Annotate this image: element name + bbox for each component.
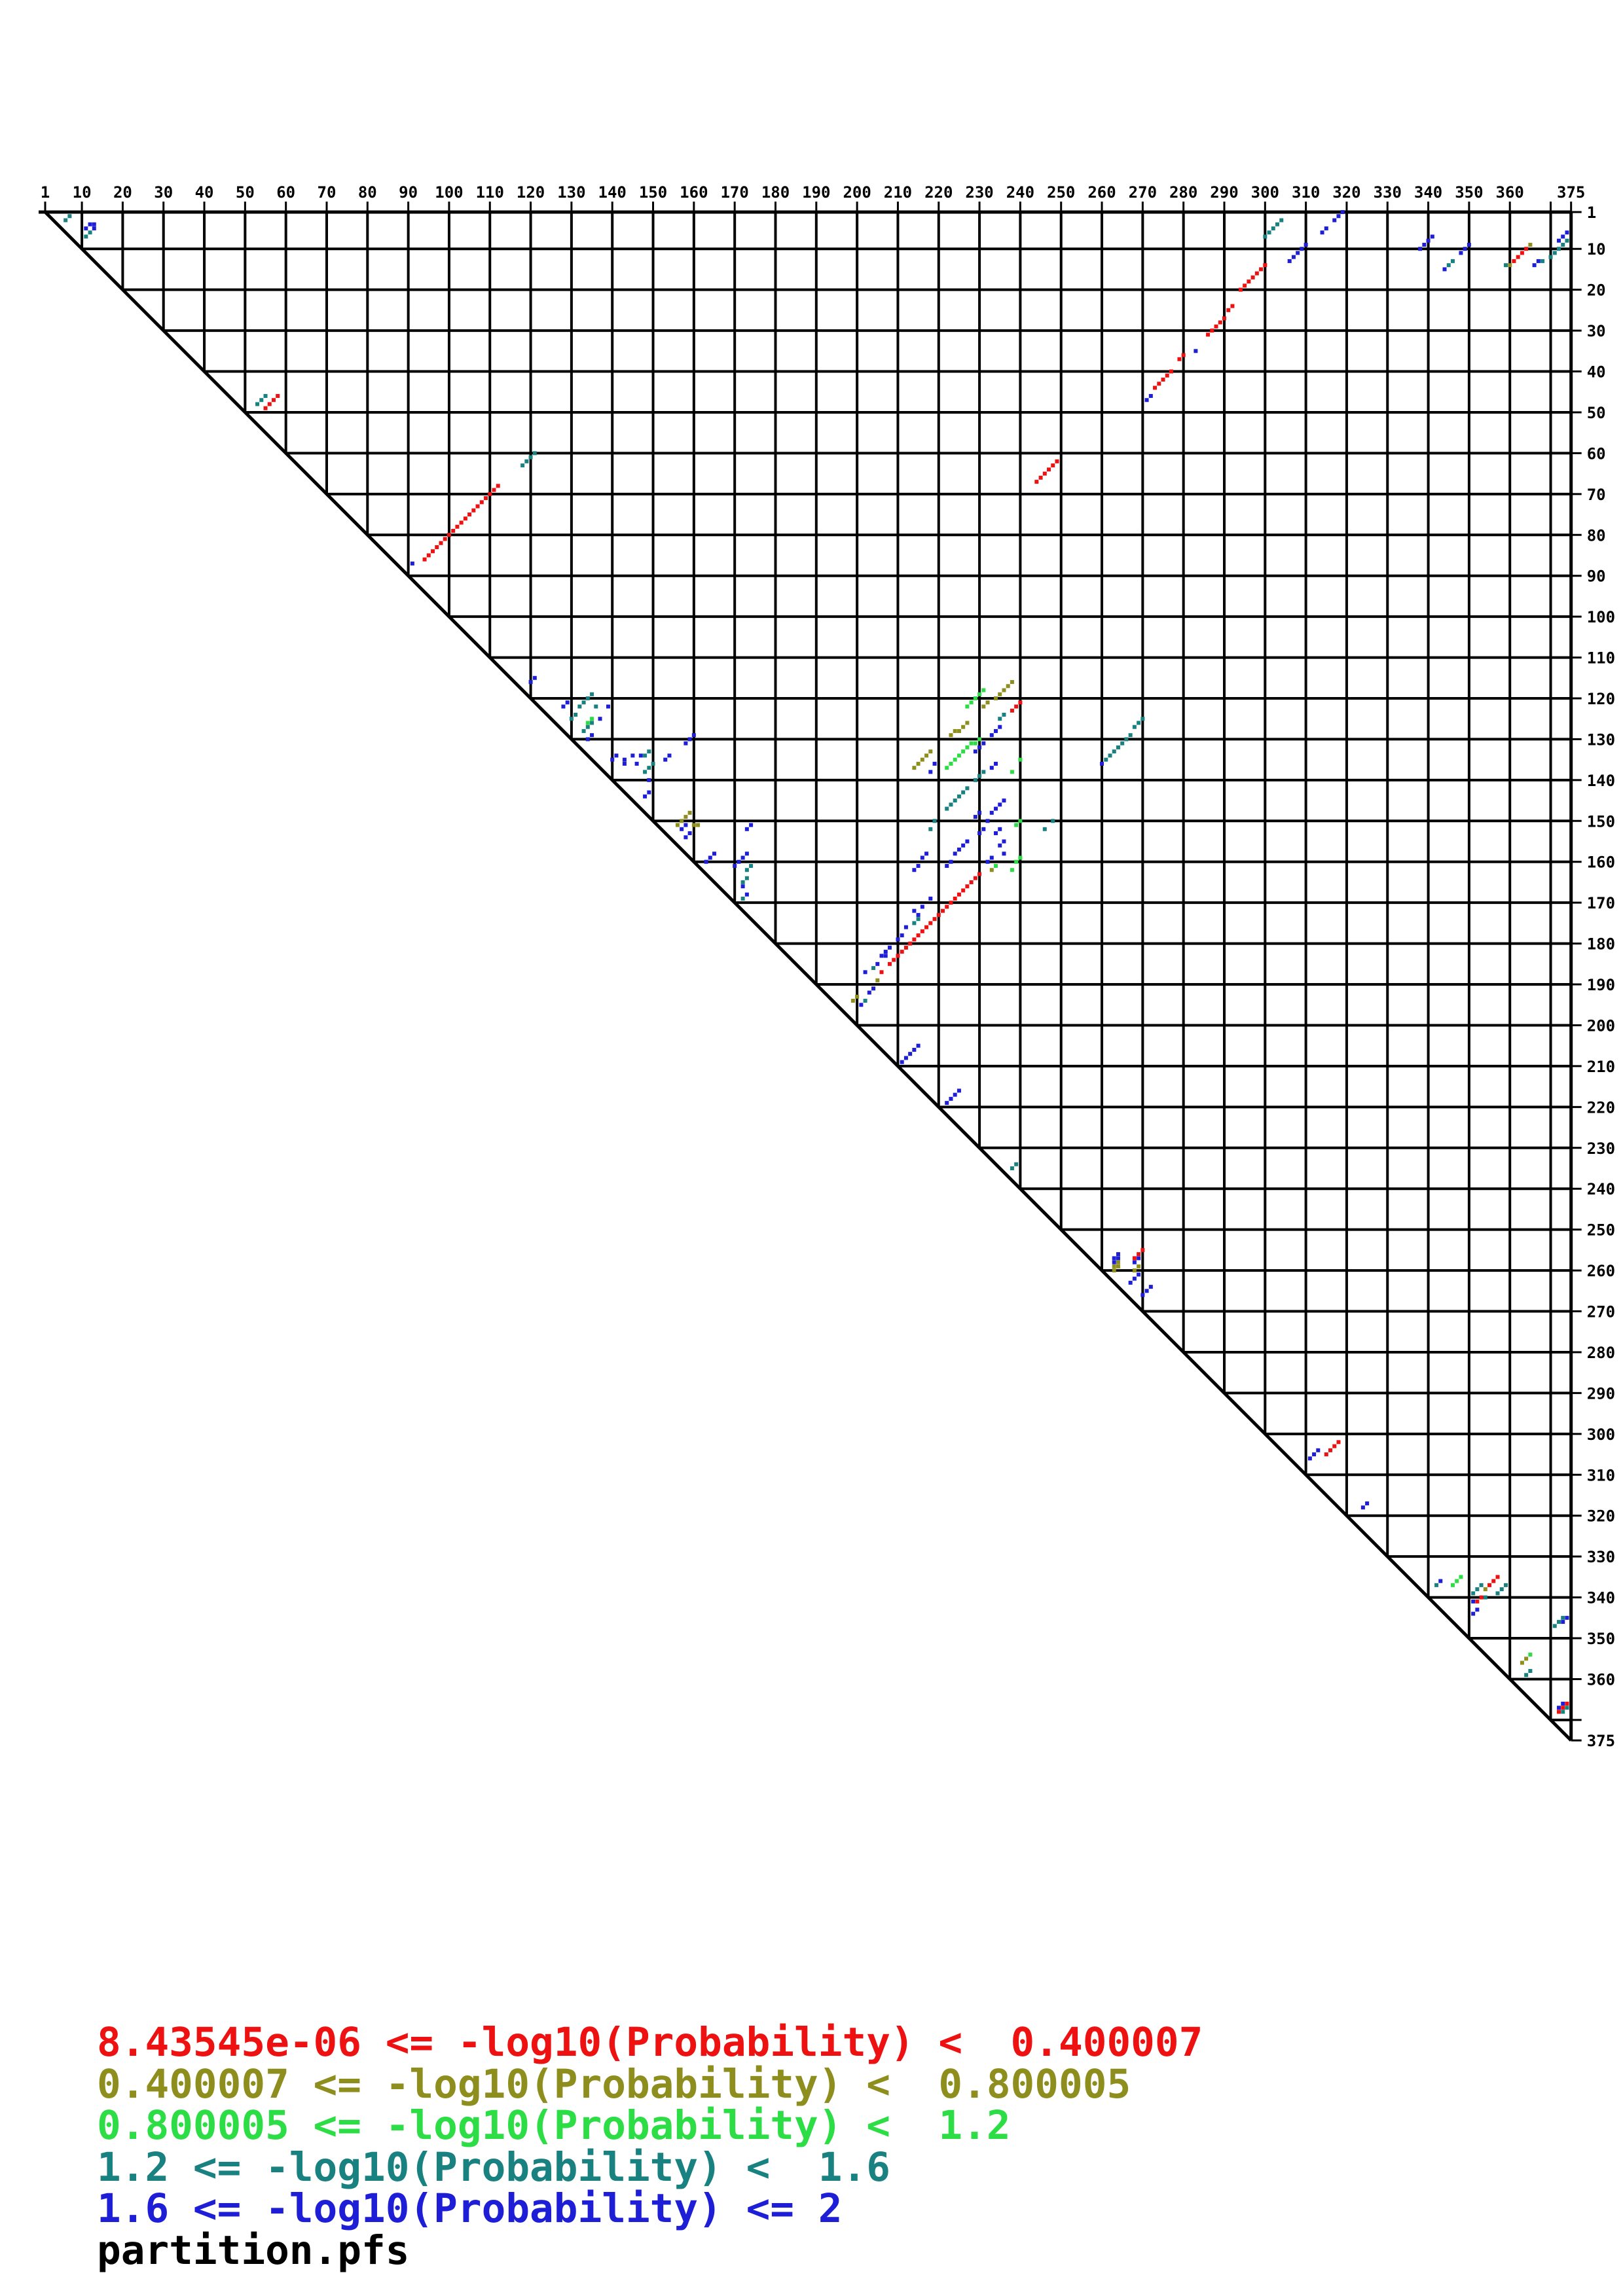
right-tick-label-20: 20 <box>1587 281 1606 300</box>
top-tick-label-220: 220 <box>924 183 953 202</box>
legend-filename: partition.pfs <box>97 2231 409 2270</box>
top-tick-label-260: 260 <box>1087 183 1116 202</box>
right-tick-label-220: 220 <box>1587 1098 1615 1117</box>
top-tick-label-320: 320 <box>1332 183 1360 202</box>
legend-line-3: 0.800005 <= -log10(Probability) < 1.2 <box>97 2106 1011 2145</box>
right-tick-label-60: 60 <box>1587 444 1606 463</box>
top-tick-label-110: 110 <box>476 183 504 202</box>
right-tick-label-340: 340 <box>1587 1589 1615 1607</box>
top-tick-label-180: 180 <box>761 183 790 202</box>
top-tick-label-190: 190 <box>802 183 830 202</box>
top-tick-label-100: 100 <box>435 183 463 202</box>
right-tick-label-320: 320 <box>1587 1507 1615 1526</box>
right-tick-label-70: 70 <box>1587 486 1606 504</box>
right-tick-label-375: 375 <box>1587 1732 1615 1750</box>
right-tick-label-290: 290 <box>1587 1384 1615 1403</box>
right-tick-label-10: 10 <box>1587 240 1606 259</box>
right-tick-label-240: 240 <box>1587 1180 1615 1198</box>
top-tick-label-210: 210 <box>884 183 912 202</box>
top-tick-label-340: 340 <box>1414 183 1442 202</box>
series-prob-bin-3 <box>586 689 1533 1657</box>
tick-layer <box>45 202 1582 1740</box>
right-tick-label-160: 160 <box>1587 853 1615 872</box>
grid-layer <box>39 212 1571 1740</box>
top-tick-label-10: 10 <box>73 183 92 202</box>
right-tick-label-110: 110 <box>1587 649 1615 668</box>
right-tick-label-50: 50 <box>1587 404 1606 422</box>
dotplot-page: 1102030405060708090100110120130140150160… <box>0 0 1623 2296</box>
series-prob-bin-2 <box>676 243 1532 1665</box>
top-tick-label-230: 230 <box>965 183 993 202</box>
top-tick-label-250: 250 <box>1047 183 1075 202</box>
right-tick-label-180: 180 <box>1587 935 1615 954</box>
right-tick-label-40: 40 <box>1587 363 1606 382</box>
top-tick-label-350: 350 <box>1455 183 1483 202</box>
top-tick-label-30: 30 <box>154 183 173 202</box>
right-tick-label-300: 300 <box>1587 1426 1615 1444</box>
right-tick-label-140: 140 <box>1587 772 1615 790</box>
right-axis-labels: 1102030405060708090100110120130140150160… <box>1587 204 1615 1750</box>
top-tick-label-200: 200 <box>843 183 871 202</box>
legend-line-5: 1.6 <= -log10(Probability) <= 2 <box>97 2189 842 2229</box>
top-tick-label-90: 90 <box>399 183 418 202</box>
right-tick-label-90: 90 <box>1587 567 1606 586</box>
right-tick-label-360: 360 <box>1587 1670 1615 1689</box>
top-tick-label-330: 330 <box>1374 183 1402 202</box>
top-tick-label-160: 160 <box>680 183 708 202</box>
right-tick-label-260: 260 <box>1587 1262 1615 1280</box>
right-tick-label-310: 310 <box>1587 1466 1615 1484</box>
top-tick-label-140: 140 <box>598 183 627 202</box>
right-tick-label-170: 170 <box>1587 894 1615 912</box>
right-tick-label-210: 210 <box>1587 1058 1615 1076</box>
top-tick-label-120: 120 <box>517 183 545 202</box>
right-tick-label-350: 350 <box>1587 1630 1615 1648</box>
top-tick-label-170: 170 <box>720 183 748 202</box>
series-prob-bin-1 <box>264 247 1569 1713</box>
right-tick-label-80: 80 <box>1587 526 1606 545</box>
top-tick-label-240: 240 <box>1006 183 1034 202</box>
top-axis-labels: 1102030405060708090100110120130140150160… <box>41 183 1586 202</box>
top-tick-label-60: 60 <box>276 183 295 202</box>
legend-line-2: 0.400007 <= -log10(Probability) < 0.8000… <box>97 2064 1131 2104</box>
top-tick-label-300: 300 <box>1251 183 1279 202</box>
dotplot: 1102030405060708090100110120130140150160… <box>0 0 1623 2296</box>
right-tick-label-100: 100 <box>1587 608 1615 626</box>
right-tick-label-270: 270 <box>1587 1303 1615 1321</box>
top-tick-label-310: 310 <box>1292 183 1320 202</box>
top-tick-label-280: 280 <box>1169 183 1197 202</box>
legend-line-4: 1.2 <= -log10(Probability) < 1.6 <box>97 2147 890 2187</box>
right-tick-label-150: 150 <box>1587 812 1615 831</box>
right-tick-label-120: 120 <box>1587 690 1615 708</box>
top-tick-label-20: 20 <box>113 183 132 202</box>
top-tick-label-360: 360 <box>1496 183 1524 202</box>
top-tick-label-270: 270 <box>1129 183 1157 202</box>
right-tick-label-1: 1 <box>1587 204 1596 222</box>
right-tick-label-190: 190 <box>1587 976 1615 994</box>
right-tick-label-130: 130 <box>1587 730 1615 749</box>
top-tick-label-150: 150 <box>639 183 667 202</box>
legend: 8.43545e-06 <= -log10(Probability) < 0.4… <box>97 2022 1537 2278</box>
top-tick-label-1: 1 <box>41 183 50 202</box>
right-tick-label-250: 250 <box>1587 1221 1615 1240</box>
right-tick-label-230: 230 <box>1587 1139 1615 1158</box>
right-tick-label-200: 200 <box>1587 1016 1615 1035</box>
top-tick-label-40: 40 <box>195 183 214 202</box>
top-tick-label-290: 290 <box>1210 183 1238 202</box>
top-tick-label-50: 50 <box>236 183 255 202</box>
top-tick-label-70: 70 <box>318 183 337 202</box>
legend-line-1: 8.43545e-06 <= -log10(Probability) < 0.4… <box>97 2022 1203 2062</box>
top-tick-label-80: 80 <box>358 183 377 202</box>
right-tick-label-280: 280 <box>1587 1344 1615 1362</box>
top-tick-label-130: 130 <box>557 183 585 202</box>
right-tick-label-30: 30 <box>1587 322 1606 340</box>
right-tick-label-330: 330 <box>1587 1548 1615 1566</box>
top-tick-label-375: 375 <box>1557 183 1585 202</box>
